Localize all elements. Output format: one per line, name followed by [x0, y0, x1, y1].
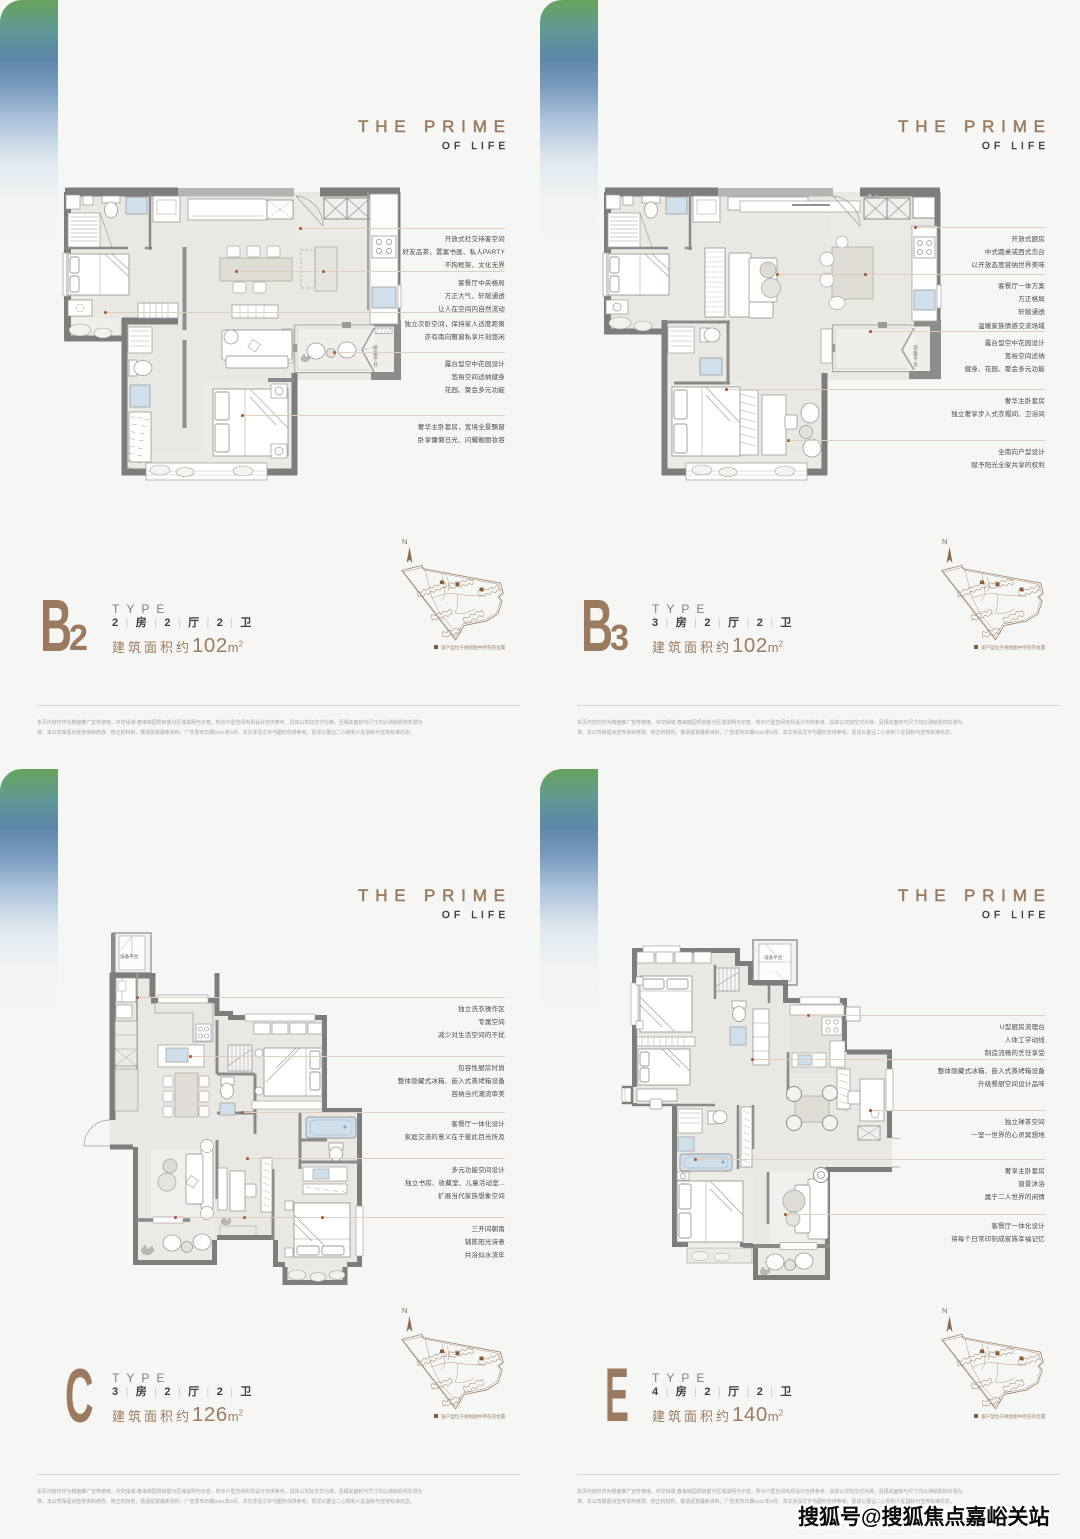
svg-text:设备平台: 设备平台	[764, 954, 783, 961]
svg-text:设备平台: 设备平台	[120, 953, 139, 960]
